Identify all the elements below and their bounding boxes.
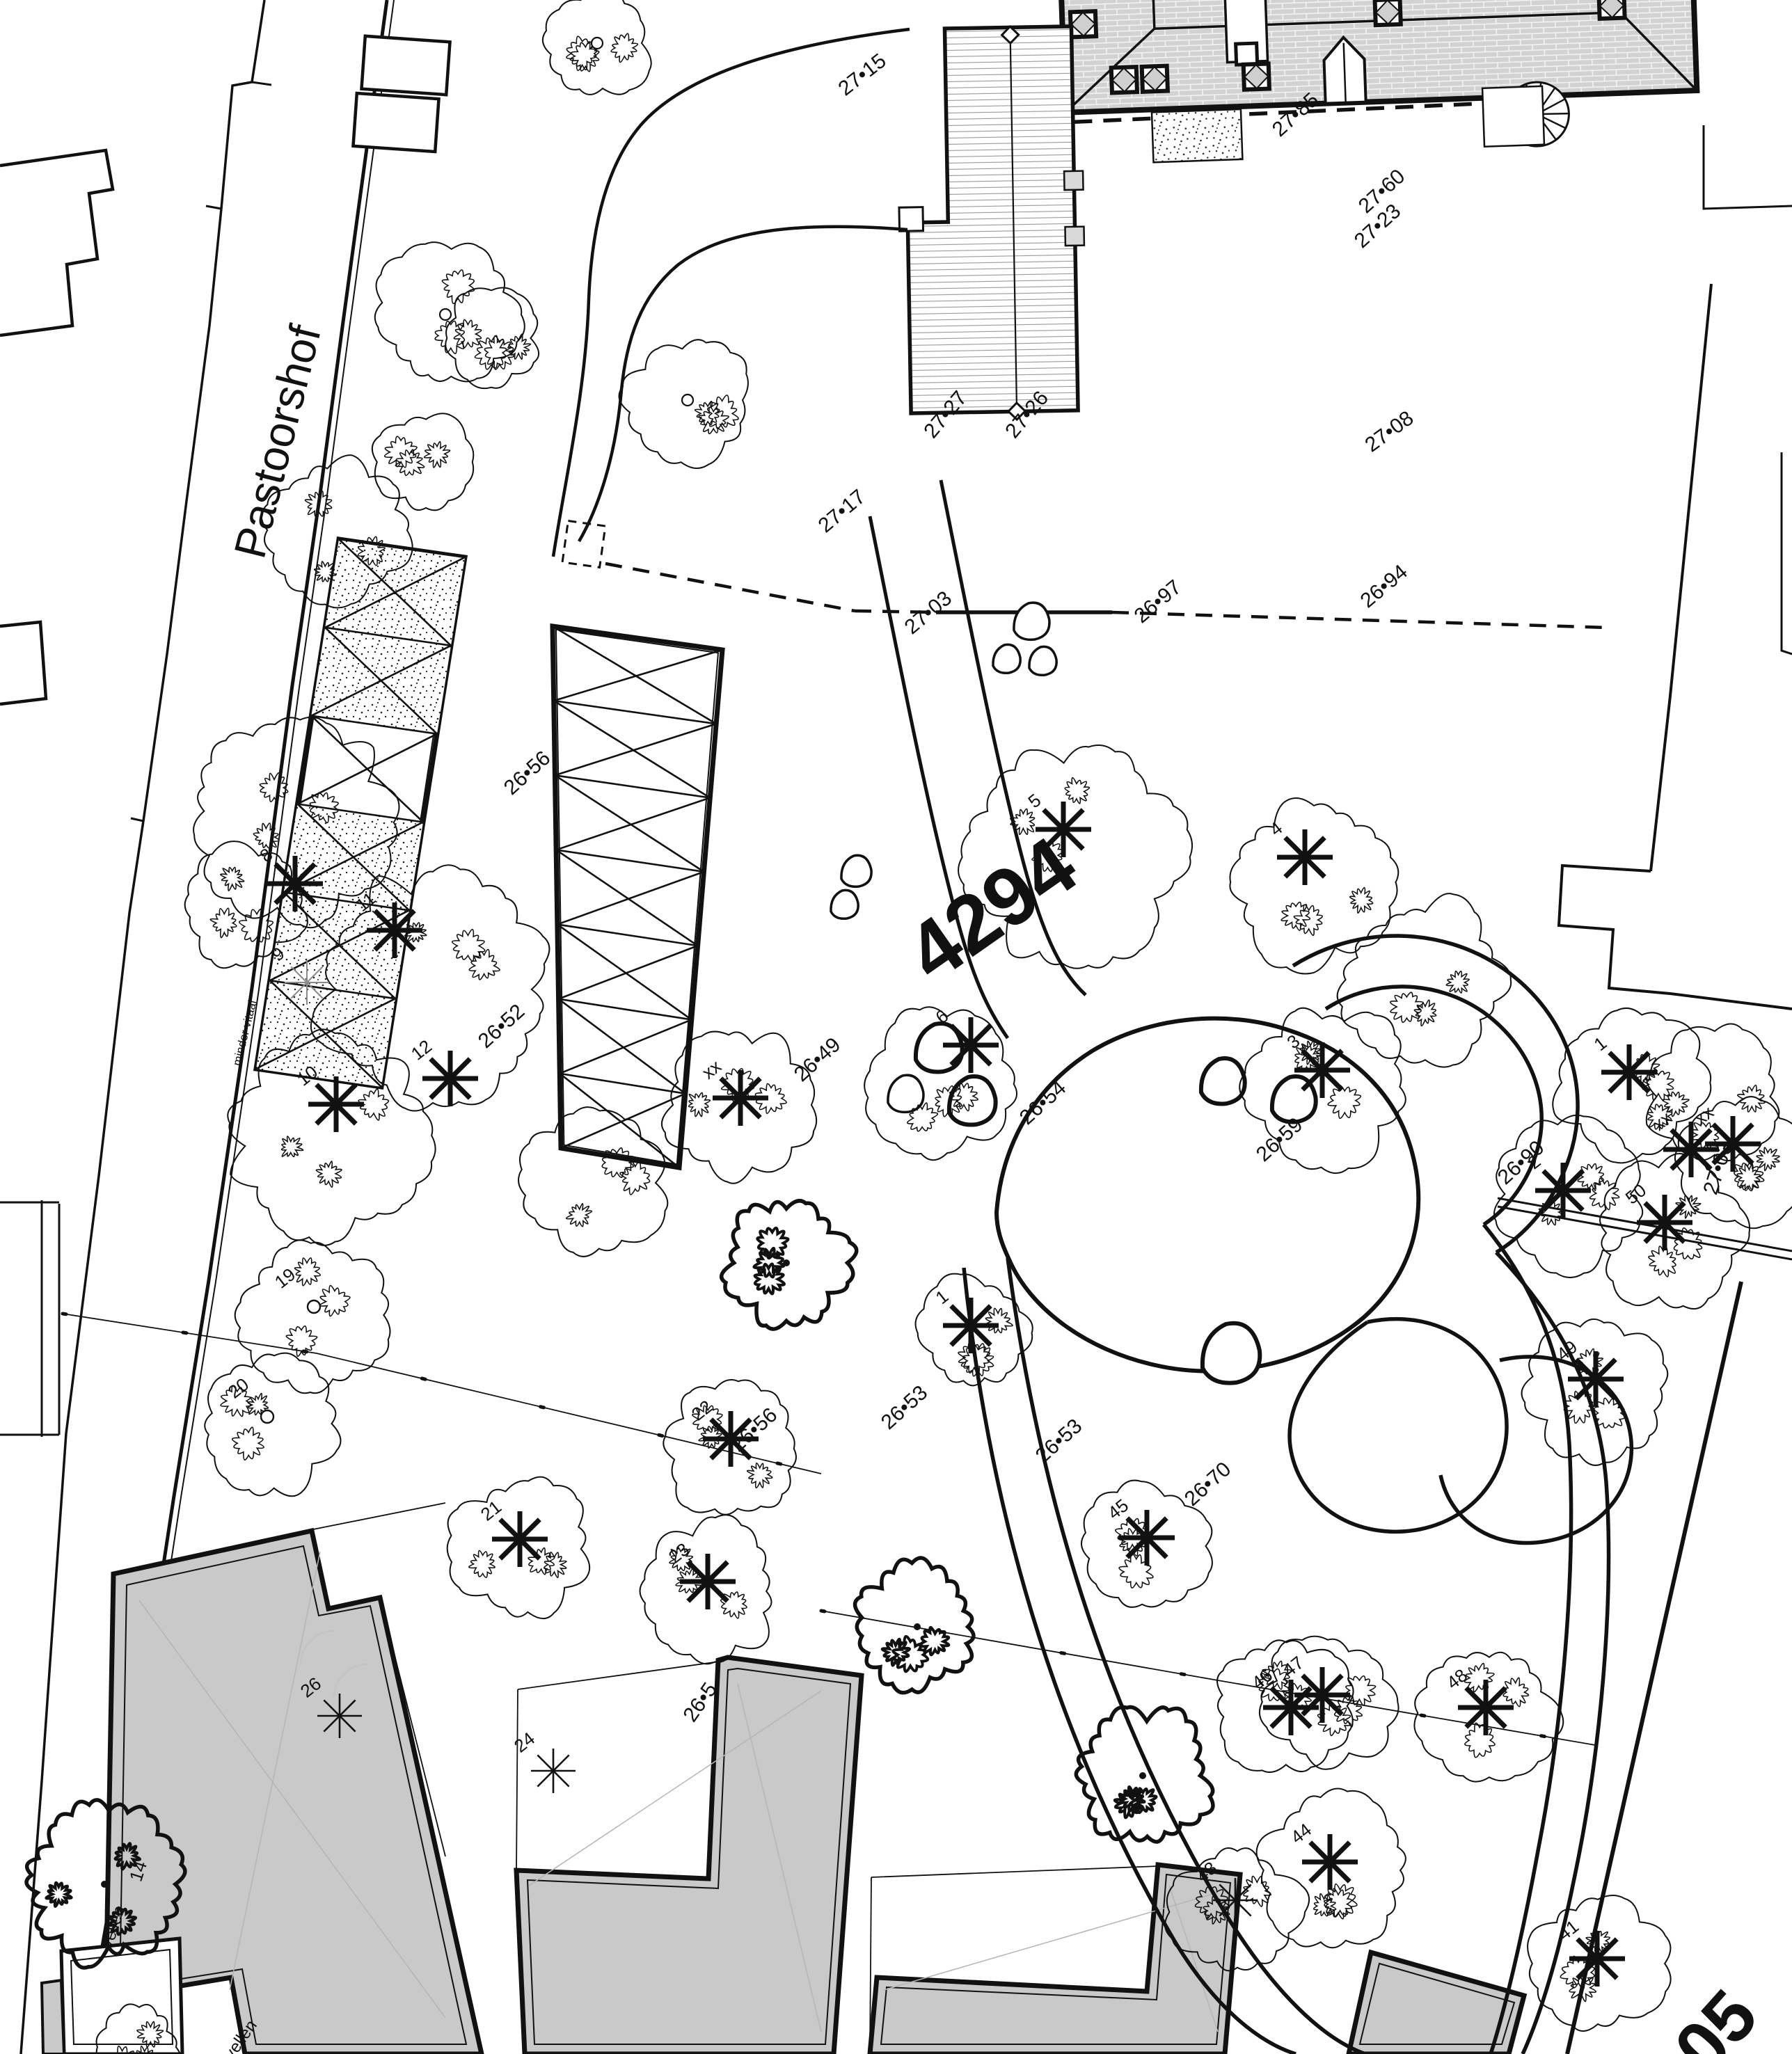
pebble [831, 890, 858, 918]
stair-landing [1482, 86, 1544, 147]
pebble [993, 644, 1020, 673]
skylight-icon [1070, 11, 1096, 37]
deck-step [899, 207, 923, 232]
skylight-icon [1244, 64, 1269, 90]
tree-stem [440, 309, 451, 320]
skylight-icon [1142, 66, 1168, 92]
tree-stem-icon [261, 1410, 273, 1423]
deck-post [1064, 171, 1083, 190]
pebble [841, 855, 871, 886]
tree-stem-icon [308, 1300, 320, 1313]
skylight-icon [1599, 0, 1624, 19]
tree-stem [1139, 1772, 1146, 1779]
terrace-gravel [1152, 109, 1242, 162]
skylight-icon [1375, 0, 1401, 25]
deck-post [1065, 227, 1084, 246]
pebble [1201, 1058, 1245, 1104]
tree-stem [101, 1881, 108, 1888]
skylight-icon [1111, 67, 1137, 93]
site-plan-canvas: 81191210xx546311xxxx25049192021222345262… [0, 0, 1792, 2054]
tree-stem [914, 1623, 921, 1630]
tree-stem [783, 1259, 790, 1266]
pebble [1029, 646, 1056, 675]
tree-stem [592, 38, 603, 49]
tree-stem [682, 395, 693, 406]
